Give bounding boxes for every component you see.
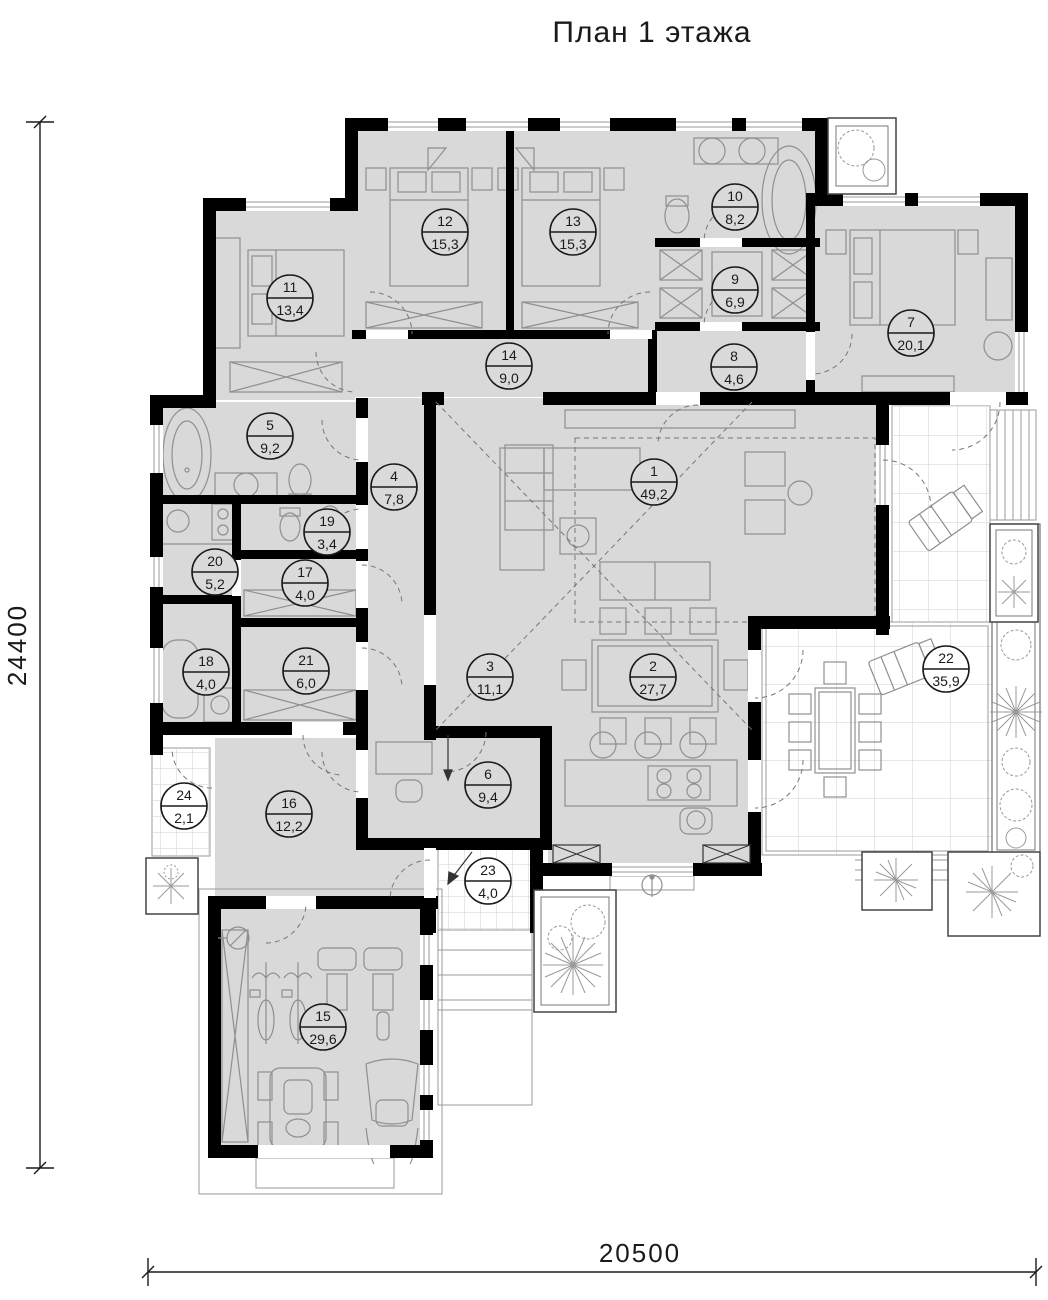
room-number: 8 <box>730 348 738 364</box>
room-area: 9,0 <box>499 370 519 386</box>
room-number: 22 <box>938 650 954 666</box>
room-number: 1 <box>650 463 658 479</box>
room-area: 9,4 <box>478 789 498 805</box>
room-label-21: 216,0 <box>283 648 329 694</box>
room-number: 20 <box>207 553 223 569</box>
room-number: 23 <box>480 862 496 878</box>
room-area: 27,7 <box>639 681 666 697</box>
room-label-19: 193,4 <box>304 509 350 555</box>
room-number: 5 <box>266 417 274 433</box>
room-area: 11,1 <box>477 681 503 697</box>
room-area: 9,2 <box>260 440 280 456</box>
room-label-10: 108,2 <box>712 184 758 230</box>
room-label-8: 84,6 <box>711 344 757 390</box>
room-area: 13,4 <box>276 302 303 318</box>
room-area: 35,9 <box>932 673 959 689</box>
room-area: 15,3 <box>559 236 586 252</box>
room-label-6: 69,4 <box>465 762 511 808</box>
room-number: 10 <box>727 188 743 204</box>
room-label-5: 59,2 <box>247 413 293 459</box>
room-area: 4,0 <box>196 676 216 692</box>
room-label-7: 720,1 <box>888 310 934 356</box>
room-area: 4,0 <box>478 885 498 901</box>
room-label-12: 1215,3 <box>422 209 468 255</box>
room-area: 12,2 <box>275 818 302 834</box>
room-number: 14 <box>501 347 517 363</box>
room-area: 3,4 <box>317 536 337 552</box>
room-number: 24 <box>176 787 192 803</box>
room-number: 6 <box>484 766 492 782</box>
room-area: 6,0 <box>296 675 316 691</box>
dimension-bottom-value: 20500 <box>599 1238 681 1268</box>
room-area: 7,8 <box>384 491 404 507</box>
floor-plan-page: План 1 этажа <box>0 0 1048 1300</box>
page-title: План 1 этажа <box>552 16 751 49</box>
room-number: 18 <box>198 653 214 669</box>
floor-plan-drawing: План 1 этажа <box>0 0 1048 1300</box>
room-area: 49,2 <box>640 486 667 502</box>
room-number: 19 <box>319 513 335 529</box>
room-area: 20,1 <box>897 337 924 353</box>
room-number: 2 <box>649 658 657 674</box>
room-label-23: 234,0 <box>465 858 511 904</box>
room-number: 11 <box>283 279 298 295</box>
room-area: 4,0 <box>295 587 315 603</box>
room-label-24: 242,1 <box>161 783 207 829</box>
room-label-13: 1315,3 <box>550 209 596 255</box>
room-number: 7 <box>907 314 915 330</box>
room-label-1: 149,2 <box>631 459 677 505</box>
room-number: 4 <box>390 468 398 484</box>
room-number: 15 <box>315 1008 331 1024</box>
room-area: 5,2 <box>205 576 225 592</box>
room-label-17: 174,0 <box>282 560 328 606</box>
room-number: 17 <box>297 564 313 580</box>
room-number: 13 <box>565 213 581 229</box>
room-label-11: 1113,4 <box>267 275 313 321</box>
dimension-left-value: 24400 <box>2 604 32 686</box>
room-label-2: 227,7 <box>630 654 676 700</box>
room-area: 6,9 <box>725 294 745 310</box>
room-label-4: 47,8 <box>371 464 417 510</box>
room-label-18: 184,0 <box>183 649 229 695</box>
room-label-15: 1529,6 <box>300 1004 346 1050</box>
room-area: 8,2 <box>725 211 745 227</box>
room-label-16: 1612,2 <box>266 791 312 837</box>
room-label-14: 149,0 <box>486 343 532 389</box>
room-number: 21 <box>298 652 314 668</box>
room-area: 2,1 <box>174 810 194 826</box>
room-label-9: 96,9 <box>712 267 758 313</box>
room-number: 9 <box>731 271 739 287</box>
room-area: 4,6 <box>724 371 744 387</box>
room-number: 12 <box>437 213 453 229</box>
room-label-20: 205,2 <box>192 549 238 595</box>
room-number: 16 <box>281 795 297 811</box>
room-label-3: 311,1 <box>467 654 513 700</box>
room-area: 29,6 <box>309 1031 336 1047</box>
room-label-22: 2235,9 <box>923 646 969 692</box>
room-number: 3 <box>486 658 494 674</box>
room-area: 15,3 <box>431 236 458 252</box>
